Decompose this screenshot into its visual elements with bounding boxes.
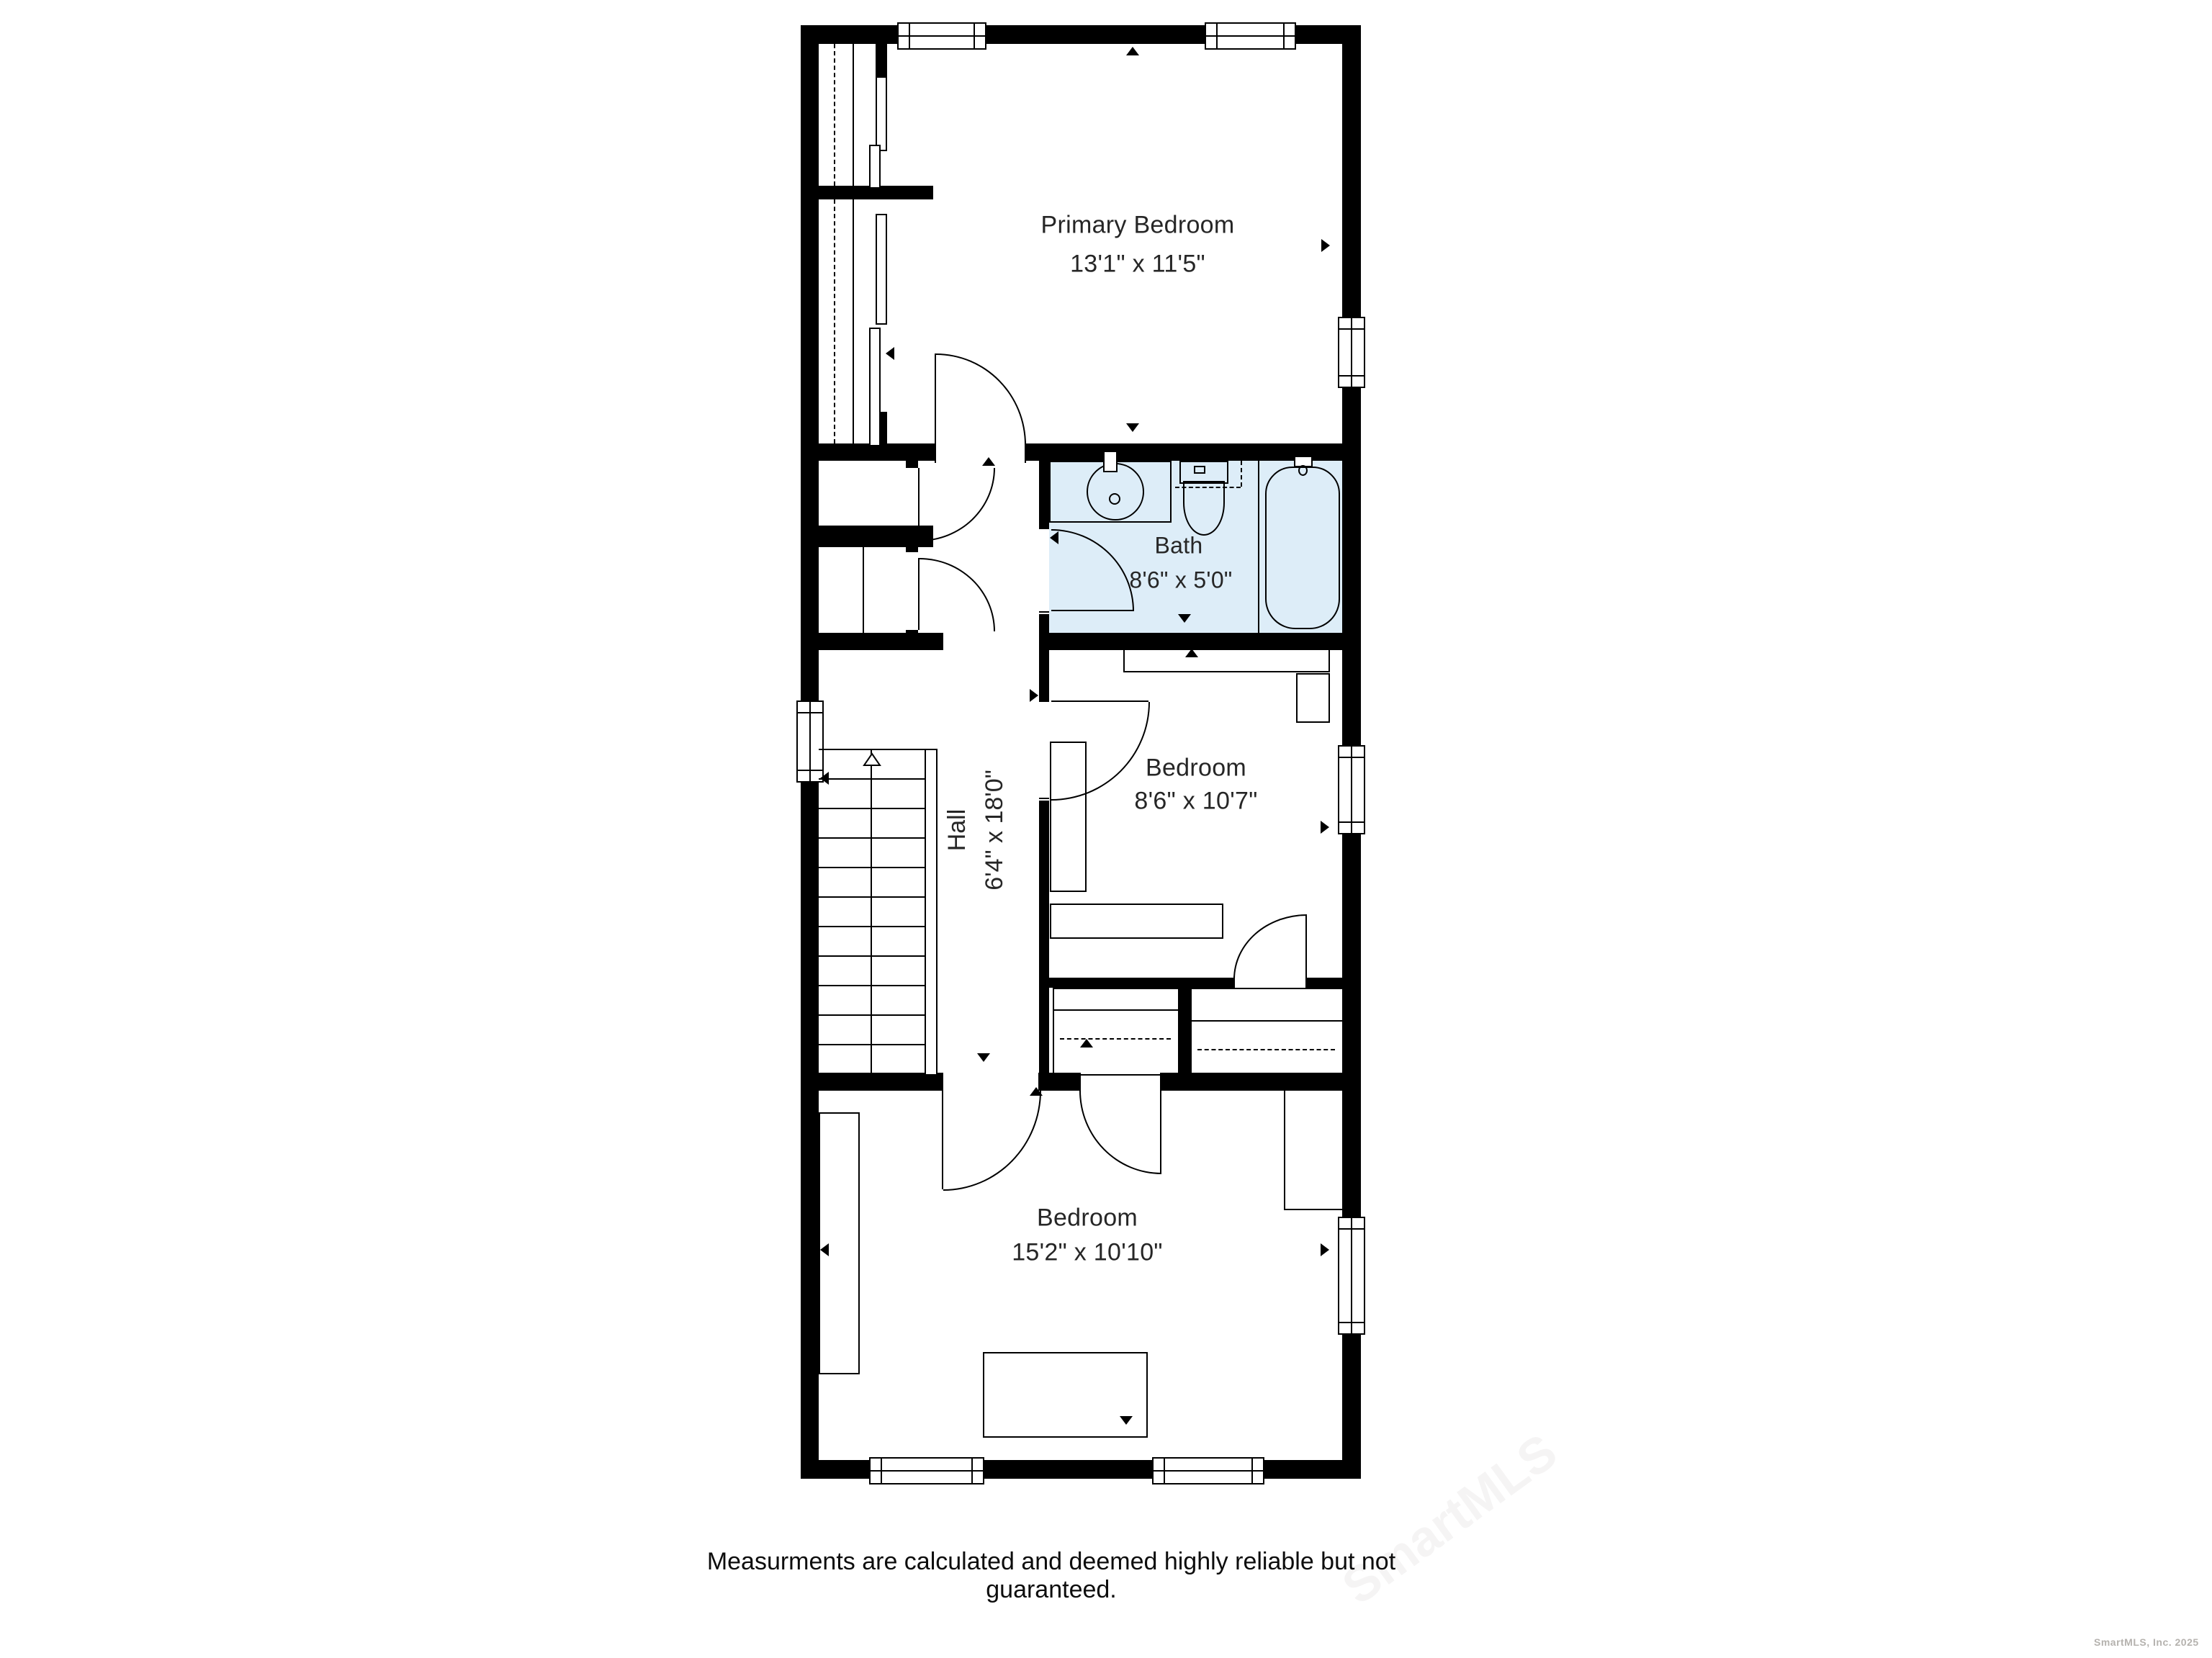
closet-rod-dashed-line (834, 199, 835, 443)
tub-alcove-line (1258, 461, 1259, 633)
door-swing-icon (920, 558, 995, 631)
direction-arrow-icon (820, 1243, 829, 1256)
direction-arrow-icon (1178, 614, 1191, 623)
closet-divider-line (853, 44, 854, 186)
door-opening-bottom-1 (942, 1073, 1040, 1091)
tub-spout (1298, 465, 1308, 476)
direction-arrow-icon (1185, 449, 1198, 458)
direction-arrow-icon (1080, 1039, 1093, 1047)
wall-stub-closet-a (876, 44, 887, 76)
room-label-primary-name: Primary Bedroom (1040, 212, 1234, 240)
clearance-dashed-line (1175, 487, 1241, 488)
closet-divider-line (853, 199, 854, 443)
wardrobe (1284, 1089, 1344, 1210)
direction-arrow-icon (1030, 1087, 1043, 1096)
sliding-door-panel (869, 145, 881, 189)
direction-arrow-icon (1030, 689, 1038, 702)
direction-arrow-icon (1321, 1243, 1329, 1256)
room-label-bath-name: Bath (1154, 533, 1202, 559)
wall-hall-right-lower (1039, 799, 1049, 1073)
closet-shelf-line (1053, 1009, 1178, 1011)
closet-rod-dashed-line (1197, 1049, 1335, 1050)
closet-rod-dashed-line (1060, 1038, 1171, 1040)
direction-arrow-icon (1050, 531, 1058, 544)
stairs-up-arrow-icon (863, 752, 881, 767)
door-jamb (1039, 700, 1049, 702)
sliding-door-panel (876, 76, 887, 151)
provider-credit: SmartMLS, Inc. 2025 (2094, 1636, 2199, 1648)
bathtub-icon (1265, 467, 1340, 629)
room-label-primary-dims: 13'1" x 11'5" (1070, 251, 1205, 279)
room-label-hall-name: Hall (938, 770, 976, 891)
door-jamb (1039, 798, 1049, 799)
door-swing-icon (936, 353, 1026, 445)
closet-left (1053, 988, 1181, 1076)
direction-arrow-icon (1321, 821, 1329, 834)
closet-divider-line (863, 547, 864, 633)
wall-post-closet-mid (906, 540, 918, 552)
direction-arrow-icon (1126, 423, 1139, 432)
room-label-hall: Hall 6'4" x 18'0" (938, 770, 1013, 891)
sliding-door-panel (876, 214, 887, 325)
stairs-rail (925, 749, 938, 1076)
door-swing-icon (1079, 1091, 1161, 1174)
door-jamb (1039, 611, 1049, 613)
wall-hall-top (819, 633, 943, 650)
shelf (1296, 673, 1330, 723)
direction-arrow-icon (1185, 649, 1198, 657)
wall-bath-left-lower (1039, 613, 1049, 633)
room-label-bath-dims: 8'6" x 5'0" (1129, 567, 1232, 594)
room-label-bedroom-bottom-dims: 15'2" x 10'10" (1012, 1239, 1163, 1267)
wall-post-closet-c (906, 443, 918, 468)
door-swing-icon (920, 468, 995, 541)
closet-rod-dashed-line (834, 44, 835, 186)
wall-hall-right-upper (1039, 650, 1049, 702)
wall-primary-bottom (819, 443, 1342, 461)
direction-arrow-icon (886, 347, 894, 360)
window-icon (1152, 1457, 1264, 1484)
room-label-bedroom-bottom-name: Bedroom (1037, 1204, 1138, 1233)
stairs-center-line (871, 749, 872, 1073)
dresser (1050, 904, 1223, 939)
window-icon (1338, 317, 1365, 388)
direction-arrow-icon (982, 457, 995, 466)
room-label-bedroom-mid-dims: 8'6" x 10'7" (1134, 788, 1257, 816)
window-icon (869, 1457, 984, 1484)
window-icon (897, 22, 986, 50)
door-jamb (942, 1073, 943, 1091)
closet-shelf-line (1190, 1020, 1342, 1022)
disclaimer-text: Measurments are calculated and deemed hi… (641, 1548, 1462, 1604)
window-icon (1205, 22, 1296, 50)
sink-faucet (1103, 451, 1118, 472)
door-swing-icon (1233, 914, 1307, 979)
door-opening-bath (1039, 528, 1049, 614)
door-jamb (1039, 528, 1049, 529)
direction-arrow-icon (820, 772, 829, 785)
door-opening-bedroom-mid (1039, 700, 1049, 801)
floor-plan: Primary Bedroom 13'1" x 11'5" Bath 8'6" … (801, 25, 1361, 1479)
toilet-flush-button (1194, 466, 1205, 474)
direction-arrow-icon (1126, 47, 1139, 55)
closet-right (1190, 988, 1345, 1076)
direction-arrow-icon (977, 1053, 990, 1062)
window-icon (1338, 745, 1365, 834)
direction-arrow-icon (1120, 1416, 1133, 1425)
sliding-door-panel (869, 328, 881, 446)
room-label-bedroom-mid-name: Bedroom (1146, 754, 1246, 783)
door-swing-icon (943, 1091, 1041, 1191)
wall-bath-left-upper (1039, 443, 1049, 529)
direction-arrow-icon (1321, 239, 1330, 252)
dresser (983, 1352, 1148, 1438)
wall-post-closet-d (906, 630, 918, 650)
built-in (1050, 742, 1087, 892)
closet-shelf (1123, 641, 1330, 672)
sink-drain (1109, 493, 1120, 505)
room-label-hall-dims: 6'4" x 18'0" (976, 770, 1013, 891)
window-icon (1338, 1217, 1365, 1335)
clearance-dashed-line (1241, 461, 1242, 487)
